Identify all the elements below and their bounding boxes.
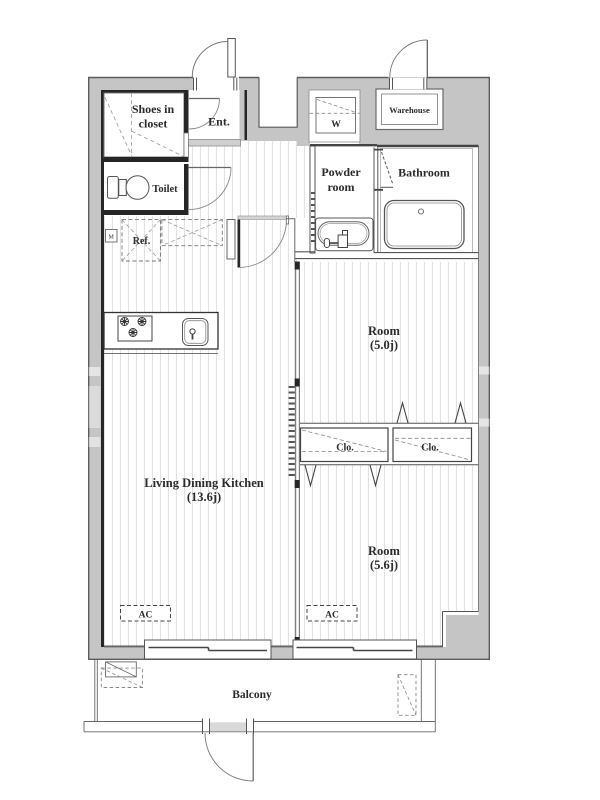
svg-text:(5.6j): (5.6j) (370, 558, 398, 572)
svg-text:Shoes in: Shoes in (132, 102, 175, 116)
svg-text:Bathroom: Bathroom (398, 166, 450, 180)
svg-text:M: M (109, 235, 115, 241)
svg-text:Ent.: Ent. (208, 115, 230, 129)
svg-text:(13.6j): (13.6j) (187, 490, 221, 504)
svg-text:AC: AC (139, 611, 153, 621)
svg-text:(5.0j): (5.0j) (370, 338, 398, 352)
svg-text:Room: Room (368, 324, 401, 338)
svg-text:W: W (331, 120, 341, 130)
svg-text:AC: AC (325, 611, 339, 621)
svg-text:room: room (327, 180, 354, 194)
svg-text:Toilet: Toilet (152, 184, 178, 195)
svg-text:Clo.: Clo. (421, 443, 439, 454)
svg-text:Ref.: Ref. (133, 236, 151, 247)
svg-text:Balcony: Balcony (232, 689, 272, 701)
svg-text:Warehouse: Warehouse (389, 105, 430, 115)
svg-text:Powder: Powder (321, 165, 361, 179)
svg-text:Living Dining Kitchen: Living Dining Kitchen (144, 476, 264, 490)
svg-text:closet: closet (139, 117, 168, 131)
svg-text:Room: Room (368, 544, 401, 558)
svg-text:Clo.: Clo. (336, 443, 354, 454)
